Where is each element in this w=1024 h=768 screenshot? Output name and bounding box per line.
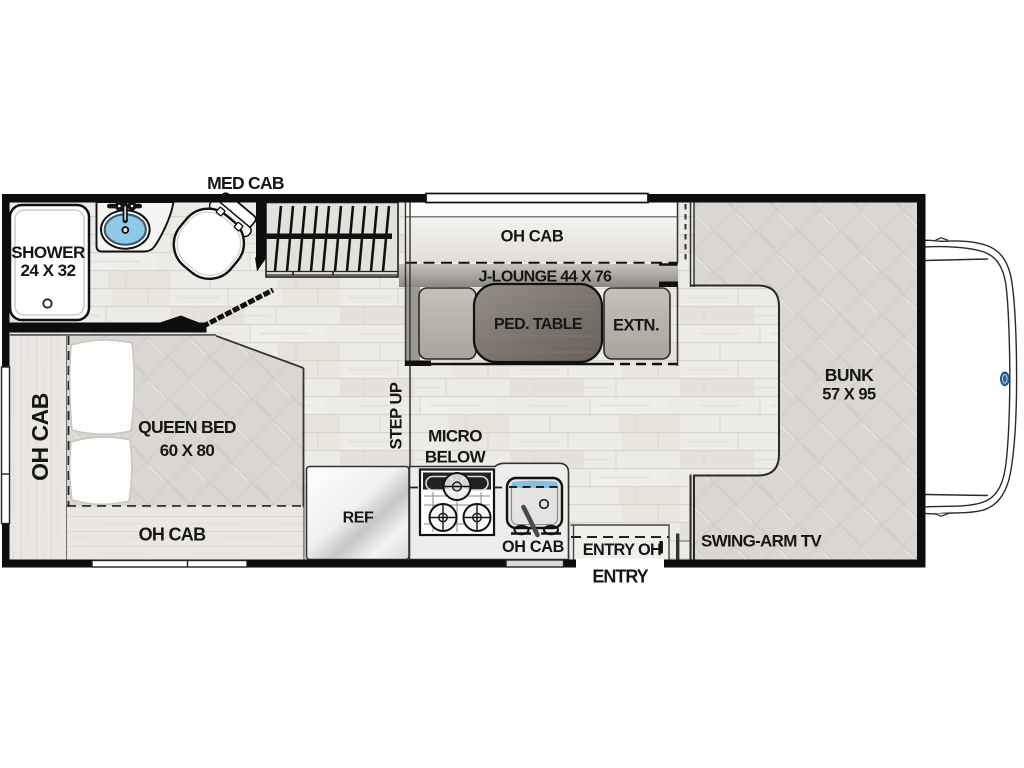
svg-text:BUNK: BUNK bbox=[825, 365, 874, 385]
svg-text:MED CAB: MED CAB bbox=[207, 173, 284, 193]
svg-text:BELOW: BELOW bbox=[425, 448, 487, 467]
svg-text:EXTN.: EXTN. bbox=[613, 317, 659, 335]
svg-text:OH CAB: OH CAB bbox=[139, 525, 206, 545]
svg-text:SWING-ARM TV: SWING-ARM TV bbox=[701, 532, 822, 551]
svg-text:ENTRY: ENTRY bbox=[592, 567, 648, 587]
svg-text:QUEEN BED: QUEEN BED bbox=[138, 417, 236, 437]
svg-text:24 X 32: 24 X 32 bbox=[20, 261, 75, 280]
svg-text:MICRO: MICRO bbox=[428, 427, 482, 446]
svg-text:OH CAB: OH CAB bbox=[502, 538, 564, 556]
svg-text:ENTRY OH: ENTRY OH bbox=[583, 541, 661, 559]
svg-text:SHOWER: SHOWER bbox=[11, 243, 85, 262]
svg-text:PED. TABLE: PED. TABLE bbox=[494, 316, 583, 333]
svg-text:60 X 80: 60 X 80 bbox=[160, 441, 215, 460]
svg-text:57 X 95: 57 X 95 bbox=[822, 386, 876, 404]
svg-text:OH CAB: OH CAB bbox=[501, 228, 564, 246]
svg-text:OH CAB: OH CAB bbox=[27, 393, 53, 481]
svg-text:REF: REF bbox=[343, 510, 374, 527]
svg-text:STEP UP: STEP UP bbox=[388, 382, 406, 449]
